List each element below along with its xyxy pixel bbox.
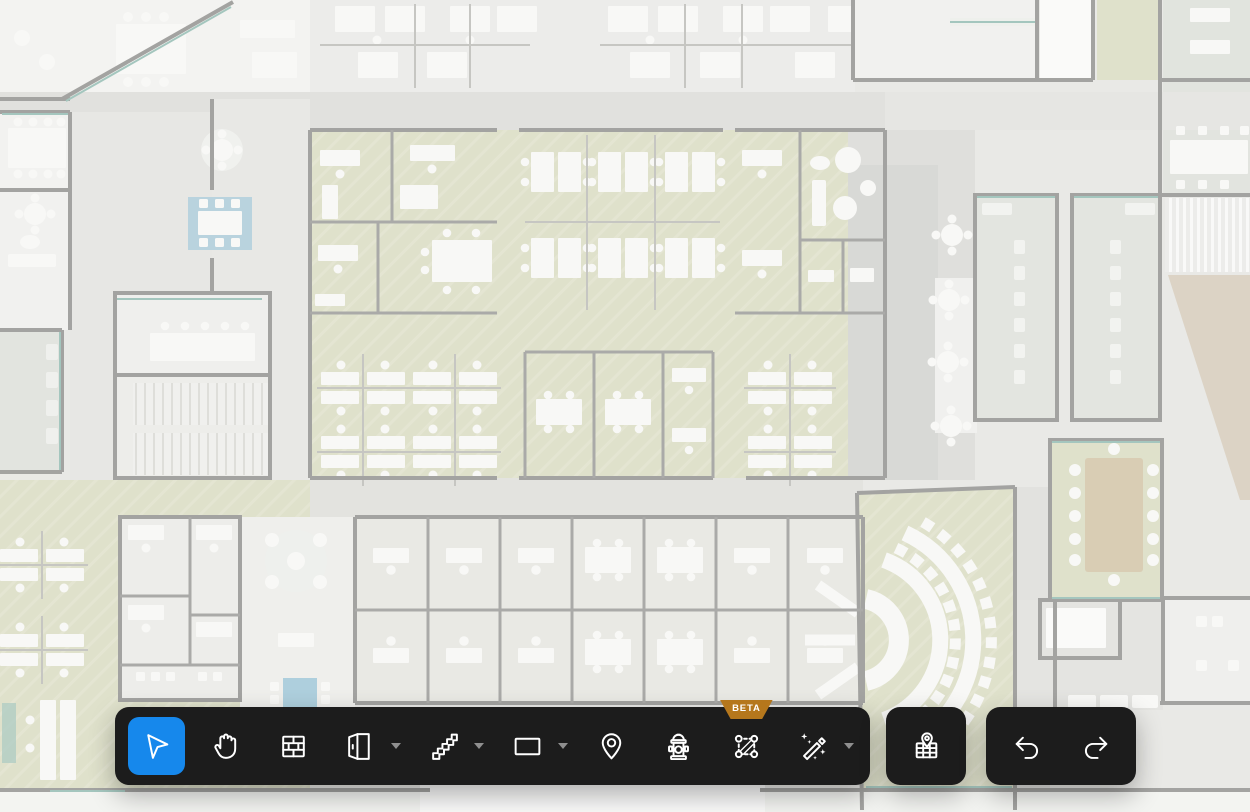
stairs-tool-dropdown[interactable] — [471, 719, 487, 773]
zone-tool-wrap: BETA — [719, 719, 773, 773]
minimap-button[interactable] — [899, 719, 953, 773]
magic-wand-tool-button[interactable] — [787, 719, 841, 773]
redo-icon — [1079, 730, 1112, 763]
minimap-toolbar — [886, 707, 966, 785]
door-tool-button[interactable] — [334, 719, 388, 773]
chevron-down-icon — [391, 743, 401, 749]
history-toolbar — [986, 707, 1136, 785]
rectangle-tool-button[interactable] — [501, 719, 555, 773]
undo-button[interactable] — [1000, 719, 1054, 773]
zone-marquee-icon — [730, 730, 763, 763]
stairs-tool-group — [417, 719, 487, 773]
floor-plan-drawing — [0, 0, 1250, 812]
chevron-down-icon — [474, 743, 484, 749]
door-icon — [344, 730, 377, 763]
rectangle-tool-dropdown[interactable] — [555, 719, 571, 773]
fire-hydrant-tool-button[interactable] — [652, 719, 706, 773]
pan-tool-button[interactable] — [199, 719, 253, 773]
magic-wand-tool-group — [787, 719, 857, 773]
wall-tool-button[interactable] — [266, 719, 320, 773]
rectangle-tool-group — [501, 719, 571, 773]
magic-wand-tool-dropdown[interactable] — [841, 719, 857, 773]
magic-wand-icon — [797, 730, 830, 763]
rectangle-icon — [511, 730, 544, 763]
undo-icon — [1011, 730, 1044, 763]
zone-tool-button[interactable] — [719, 719, 773, 773]
select-tool-button[interactable] — [128, 717, 185, 775]
chevron-down-icon — [844, 743, 854, 749]
brick-wall-icon — [277, 730, 310, 763]
place-pin-tool-button[interactable] — [584, 719, 638, 773]
door-tool-group — [334, 719, 404, 773]
location-pin-icon — [595, 730, 628, 763]
chevron-down-icon — [558, 743, 568, 749]
fire-hydrant-icon — [662, 730, 695, 763]
app-window: BETA — [0, 0, 1250, 812]
hand-icon — [209, 730, 242, 763]
stairs-icon — [428, 730, 461, 763]
stairs-tool-button[interactable] — [417, 719, 471, 773]
beta-badge: BETA — [720, 700, 773, 719]
cursor-icon — [140, 730, 173, 763]
redo-button[interactable] — [1068, 719, 1122, 773]
door-tool-dropdown[interactable] — [388, 719, 404, 773]
map-pin-icon — [910, 730, 943, 763]
main-toolbar: BETA — [115, 707, 870, 785]
